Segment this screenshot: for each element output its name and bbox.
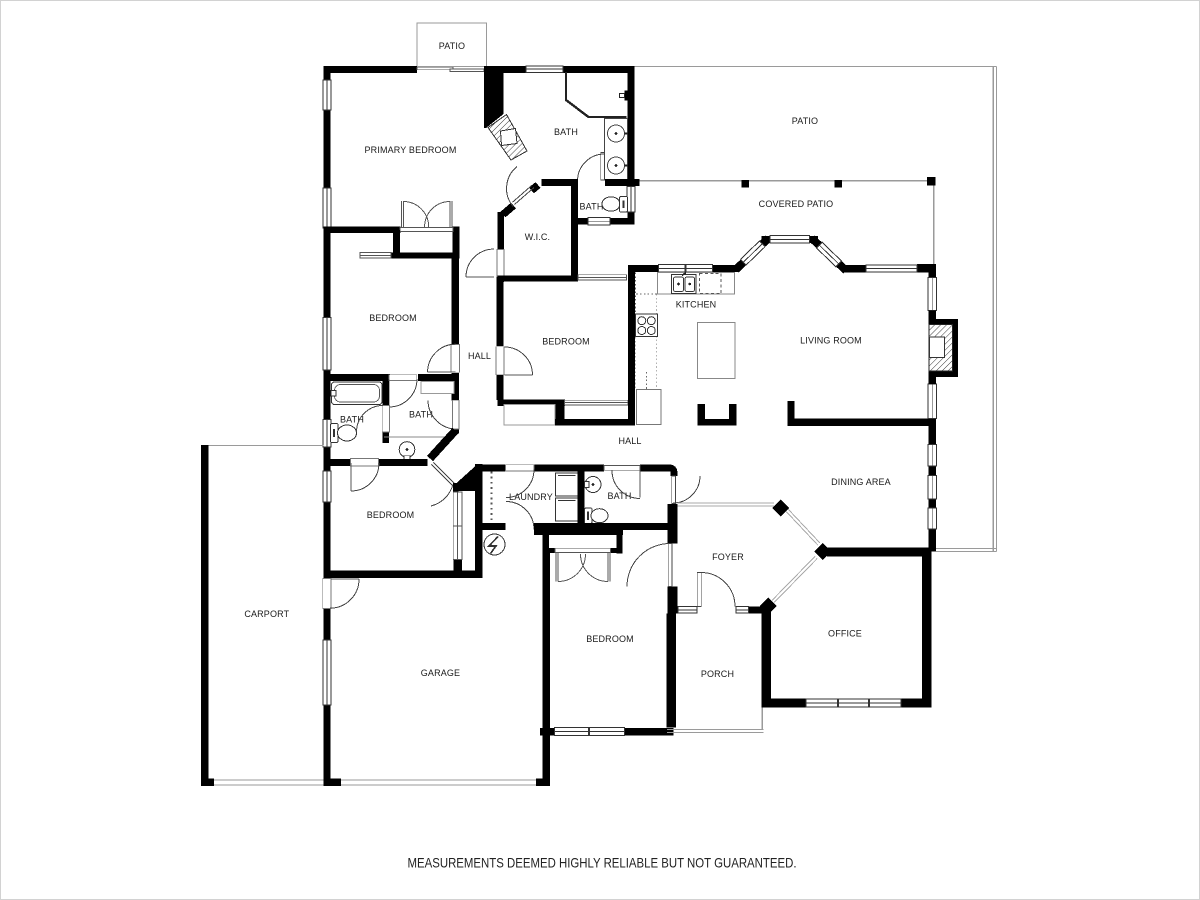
svg-text:DINING AREA: DINING AREA bbox=[831, 477, 891, 487]
svg-text:OFFICE: OFFICE bbox=[828, 629, 862, 639]
svg-text:W.I.C.: W.I.C. bbox=[525, 232, 550, 242]
svg-text:PATIO: PATIO bbox=[792, 116, 818, 126]
svg-text:BEDROOM: BEDROOM bbox=[367, 510, 415, 520]
svg-text:BEDROOM: BEDROOM bbox=[586, 634, 634, 644]
svg-text:BEDROOM: BEDROOM bbox=[542, 337, 590, 347]
svg-text:BATH: BATH bbox=[554, 127, 578, 137]
svg-text:KITCHEN: KITCHEN bbox=[676, 300, 717, 310]
svg-text:PORCH: PORCH bbox=[701, 669, 734, 679]
svg-text:COVERED PATIO: COVERED PATIO bbox=[759, 199, 834, 209]
svg-text:BATH: BATH bbox=[580, 202, 604, 212]
svg-text:LIVING ROOM: LIVING ROOM bbox=[800, 336, 862, 346]
svg-text:BATH: BATH bbox=[409, 410, 433, 420]
svg-text:PATIO: PATIO bbox=[439, 41, 465, 51]
svg-text:PRIMARY BEDROOM: PRIMARY BEDROOM bbox=[365, 145, 457, 155]
svg-text:CARPORT: CARPORT bbox=[244, 609, 289, 619]
svg-text:HALL: HALL bbox=[468, 351, 491, 361]
svg-text:MEASUREMENTS DEEMED HIGHLY REL: MEASUREMENTS DEEMED HIGHLY RELIABLE BUT … bbox=[408, 855, 797, 871]
svg-text:GARAGE: GARAGE bbox=[421, 668, 460, 678]
svg-text:BEDROOM: BEDROOM bbox=[369, 313, 417, 323]
svg-text:FOYER: FOYER bbox=[712, 552, 744, 562]
svg-text:LAUNDRY: LAUNDRY bbox=[509, 492, 553, 502]
svg-text:HALL: HALL bbox=[618, 436, 641, 446]
svg-text:BATH: BATH bbox=[340, 415, 364, 425]
